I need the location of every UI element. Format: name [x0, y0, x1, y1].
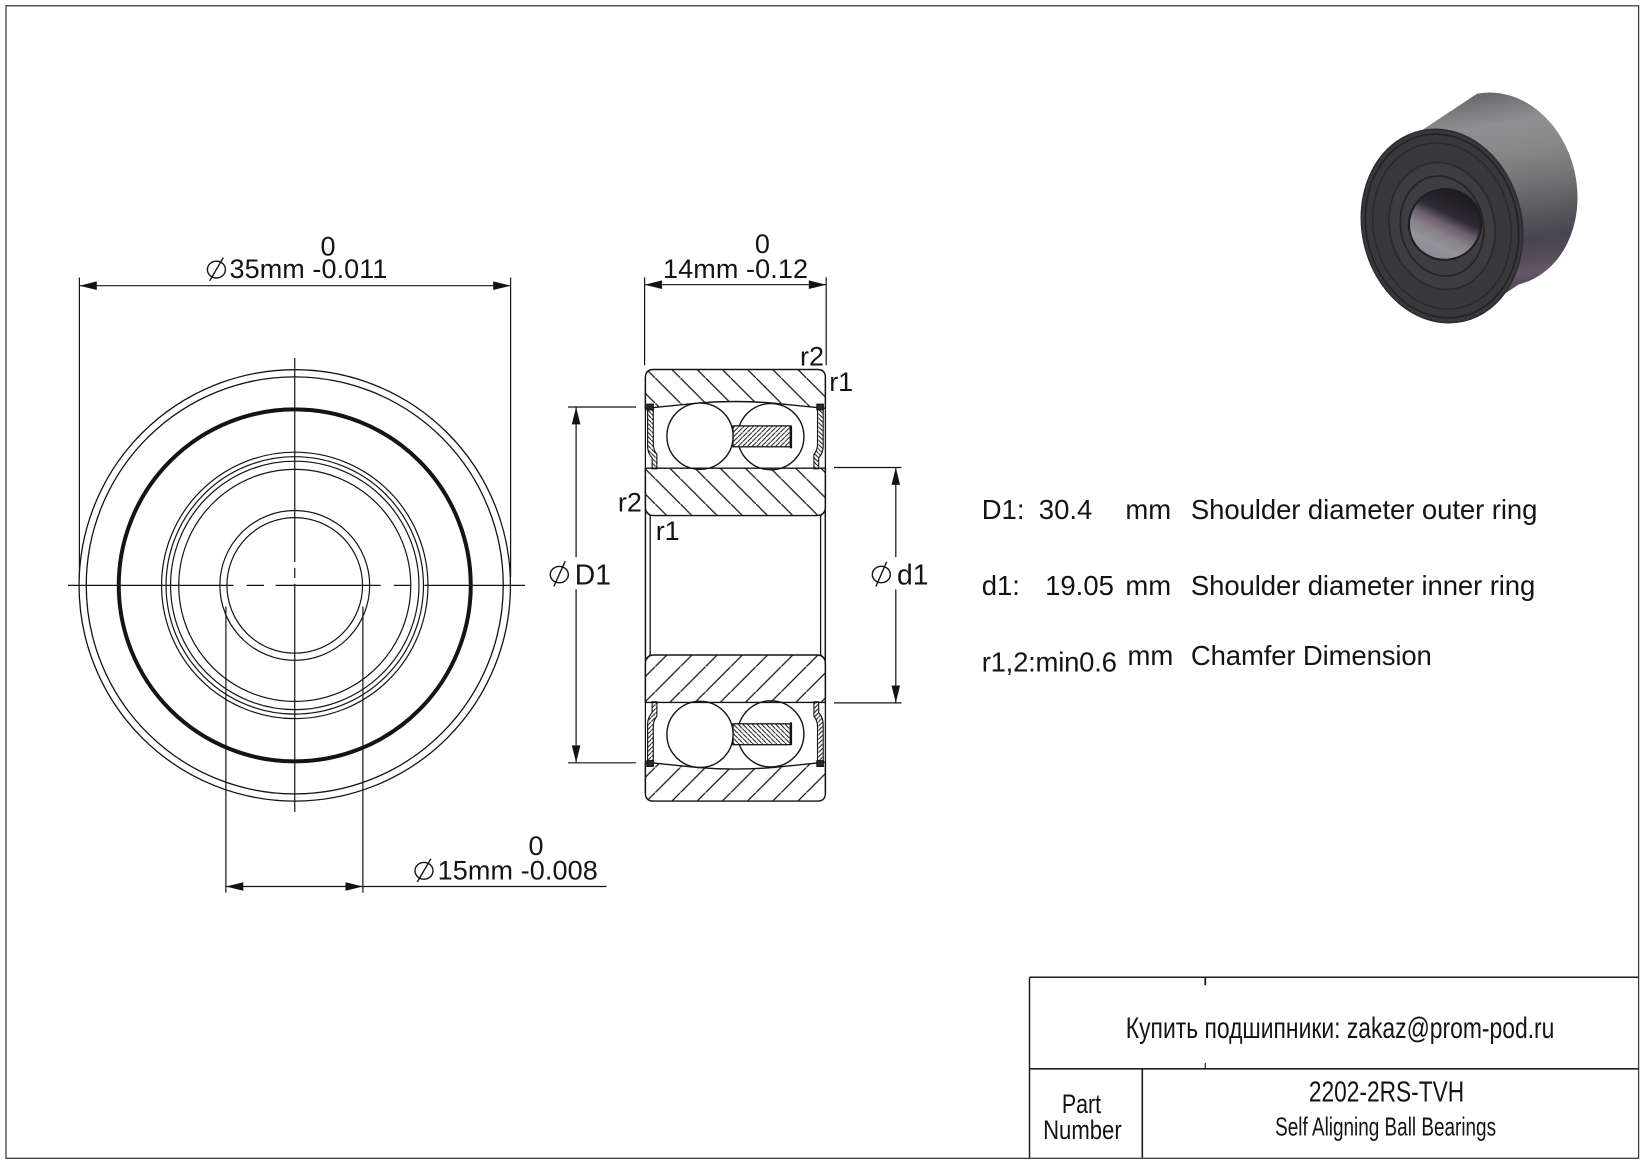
- svg-text:r2: r2: [618, 488, 642, 518]
- svg-text:0: 0: [321, 232, 336, 262]
- svg-text:Chamfer Dimension: Chamfer Dimension: [1191, 640, 1432, 671]
- svg-text:D1: D1: [575, 558, 611, 590]
- svg-text:30.4: 30.4: [1039, 494, 1093, 525]
- svg-text:0: 0: [529, 831, 544, 861]
- svg-text:r1: r1: [656, 516, 680, 546]
- svg-text:mm: mm: [1128, 640, 1174, 671]
- svg-text:35mm -0.011: 35mm -0.011: [230, 254, 388, 284]
- svg-text:Self Aligning Ball Bearings: Self Aligning Ball Bearings: [1275, 1111, 1496, 1141]
- svg-text:d1: d1: [897, 558, 928, 590]
- svg-text:mm: mm: [1125, 494, 1171, 525]
- svg-text:0: 0: [755, 229, 770, 259]
- svg-text:Shoulder diameter outer ring: Shoulder diameter outer ring: [1191, 494, 1538, 525]
- svg-text:15mm -0.008: 15mm -0.008: [438, 855, 598, 885]
- svg-text:Number: Number: [1043, 1115, 1122, 1145]
- svg-text:19.05: 19.05: [1045, 570, 1114, 601]
- svg-text:mm: mm: [1125, 570, 1171, 601]
- svg-text:r2: r2: [800, 342, 824, 372]
- svg-text:D1:: D1:: [982, 494, 1025, 525]
- svg-text:2202-2RS-TVH: 2202-2RS-TVH: [1309, 1077, 1464, 1109]
- svg-text:r1: r1: [829, 367, 853, 397]
- svg-text:Shoulder diameter inner ring: Shoulder diameter inner ring: [1191, 570, 1535, 601]
- svg-text:r1,2:min0.6: r1,2:min0.6: [982, 646, 1117, 677]
- svg-text:Купить подшипники: zakaz@prom-: Купить подшипники: zakaz@prom-pod.ru: [1126, 1012, 1555, 1045]
- svg-text:14mm -0.12: 14mm -0.12: [663, 254, 808, 284]
- svg-text:d1:: d1:: [982, 570, 1020, 601]
